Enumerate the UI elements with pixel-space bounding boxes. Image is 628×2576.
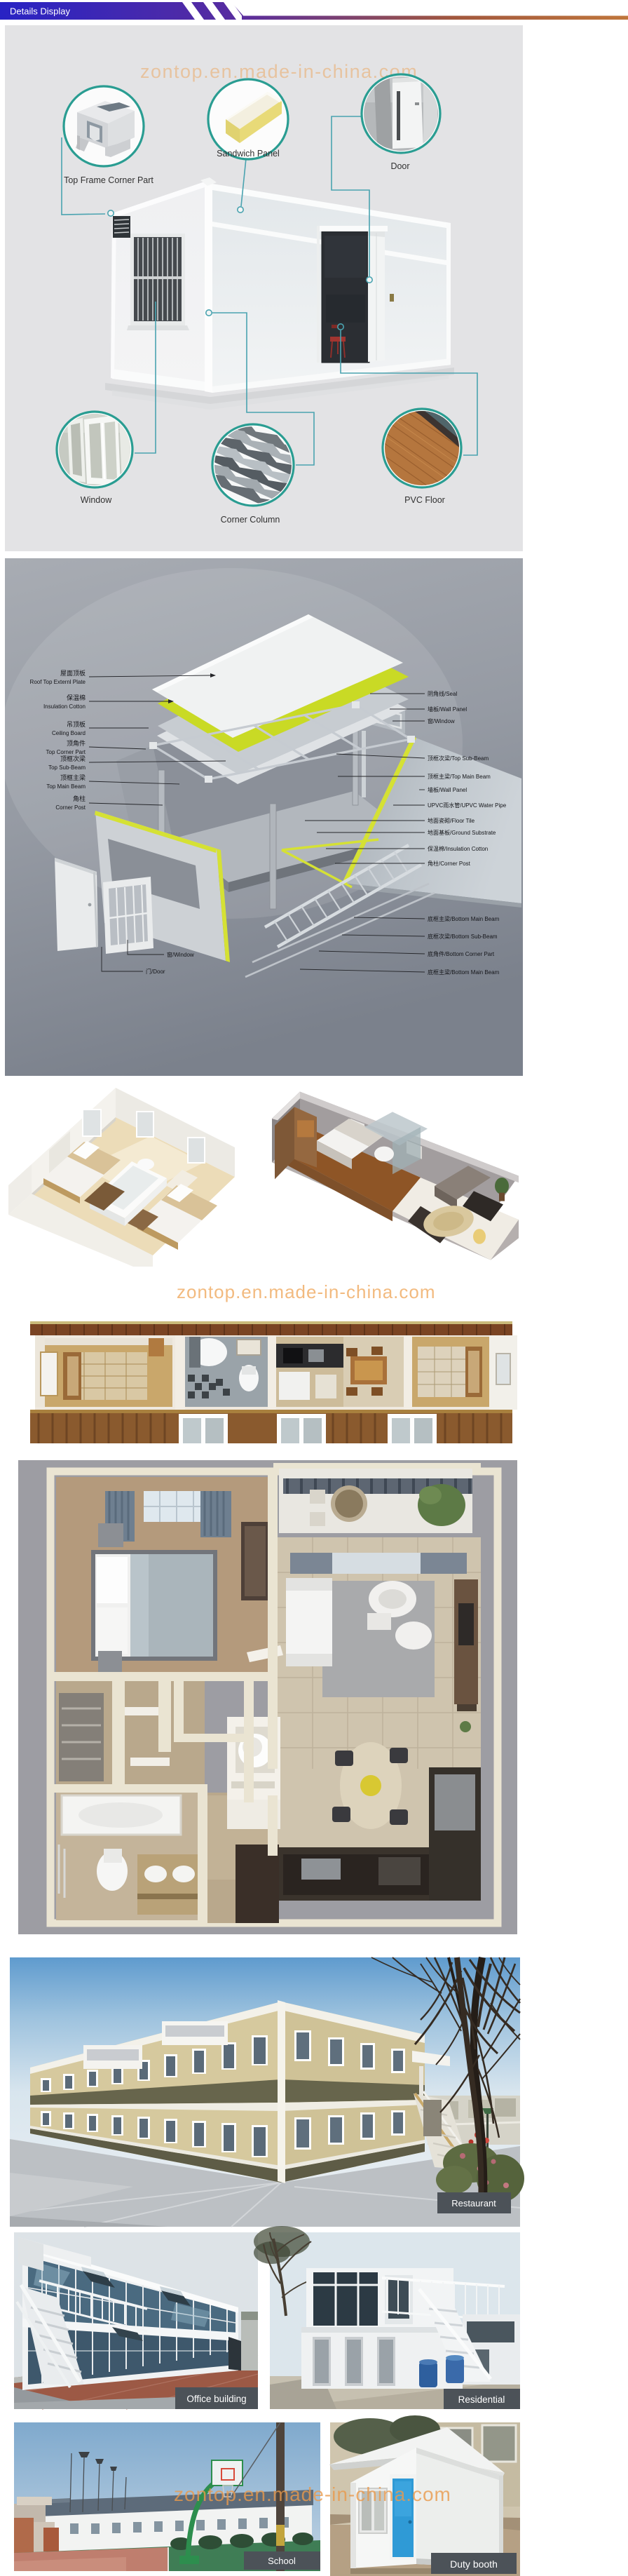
svg-text:zontop.en.made-in-china.com: zontop.en.made-in-china.com (140, 61, 418, 82)
svg-text:zontop.en.made-in-china.com: zontop.en.made-in-china.com (174, 2483, 451, 2505)
svg-text:Door: Door (390, 161, 409, 171)
svg-text:PVC Floor: PVC Floor (404, 495, 445, 505)
svg-text:Roof Top Externl Plate: Roof Top Externl Plate (30, 679, 86, 685)
svg-text:角柱: 角柱 (73, 795, 86, 802)
svg-text:屋面顶板: 屋面顶板 (60, 669, 86, 677)
svg-text:Office building: Office building (186, 2394, 246, 2404)
svg-text:保温棉/Insulation Cotton: 保温棉/Insulation Cotton (428, 845, 488, 852)
svg-text:保温棉: 保温棉 (67, 694, 86, 701)
svg-text:底角件/Bottom Corner Part: 底角件/Bottom Corner Part (428, 950, 495, 957)
svg-text:School: School (268, 2556, 296, 2566)
svg-text:窗/Window: 窗/Window (428, 717, 455, 724)
svg-text:Sandwich Panel: Sandwich Panel (217, 149, 280, 159)
svg-text:底框次梁/Bottom Sub-Beam: 底框次梁/Bottom Sub-Beam (428, 933, 498, 940)
svg-text:Top Main Beam: Top Main Beam (46, 783, 86, 790)
svg-text:底框主梁/Bottom Main Beam: 底框主梁/Bottom Main Beam (428, 969, 500, 976)
svg-text:Top Frame Corner Part: Top Frame Corner Part (64, 175, 153, 185)
svg-text:Residential: Residential (458, 2394, 505, 2405)
svg-text:底框主梁/Bottom Main Beam: 底框主梁/Bottom Main Beam (428, 915, 500, 922)
svg-text:Insulation Cotton: Insulation Cotton (43, 703, 86, 710)
svg-text:Details Display: Details Display (10, 6, 70, 17)
svg-text:Duty booth: Duty booth (450, 2558, 498, 2570)
svg-text:顶框主梁: 顶框主梁 (60, 774, 86, 781)
svg-text:门/Door: 门/Door (146, 968, 165, 975)
svg-text:Corner Column: Corner Column (221, 515, 280, 525)
svg-text:顶框次梁: 顶框次梁 (60, 755, 86, 762)
svg-text:Ceiling Board: Ceiling Board (52, 730, 86, 736)
svg-text:Restaurant: Restaurant (451, 2198, 496, 2209)
svg-text:地面基板/Ground Substrate: 地面基板/Ground Substrate (428, 829, 496, 836)
svg-text:顶框次梁/Top Sub-Beam: 顶框次梁/Top Sub-Beam (428, 755, 489, 762)
svg-text:窗/Window: 窗/Window (167, 951, 194, 958)
svg-text:角柱/Corner Post: 角柱/Corner Post (428, 860, 471, 867)
svg-text:UPVC雨水管/UPVC Water Pipe: UPVC雨水管/UPVC Water Pipe (428, 802, 507, 809)
svg-text:zontop.en.made-in-china.com: zontop.en.made-in-china.com (177, 1281, 436, 1302)
svg-text:顶角件: 顶角件 (67, 739, 86, 747)
svg-text:Window: Window (81, 495, 112, 505)
svg-text:Top Corner Part: Top Corner Part (46, 749, 86, 755)
svg-text:地面瓷砌/Floor Tile: 地面瓷砌/Floor Tile (428, 817, 475, 824)
svg-text:顶框主梁/Top Main Beam: 顶框主梁/Top Main Beam (428, 773, 491, 780)
svg-text:墙板/Wall Panel: 墙板/Wall Panel (428, 706, 467, 713)
svg-text:墙板/Wall Panel: 墙板/Wall Panel (428, 786, 467, 793)
svg-text:Top Sub-Beam: Top Sub-Beam (48, 764, 86, 771)
svg-text:Corner Post: Corner Post (55, 804, 86, 811)
svg-text:阴角线/Seal: 阴角线/Seal (428, 690, 457, 697)
svg-text:吊顶板: 吊顶板 (67, 720, 86, 728)
